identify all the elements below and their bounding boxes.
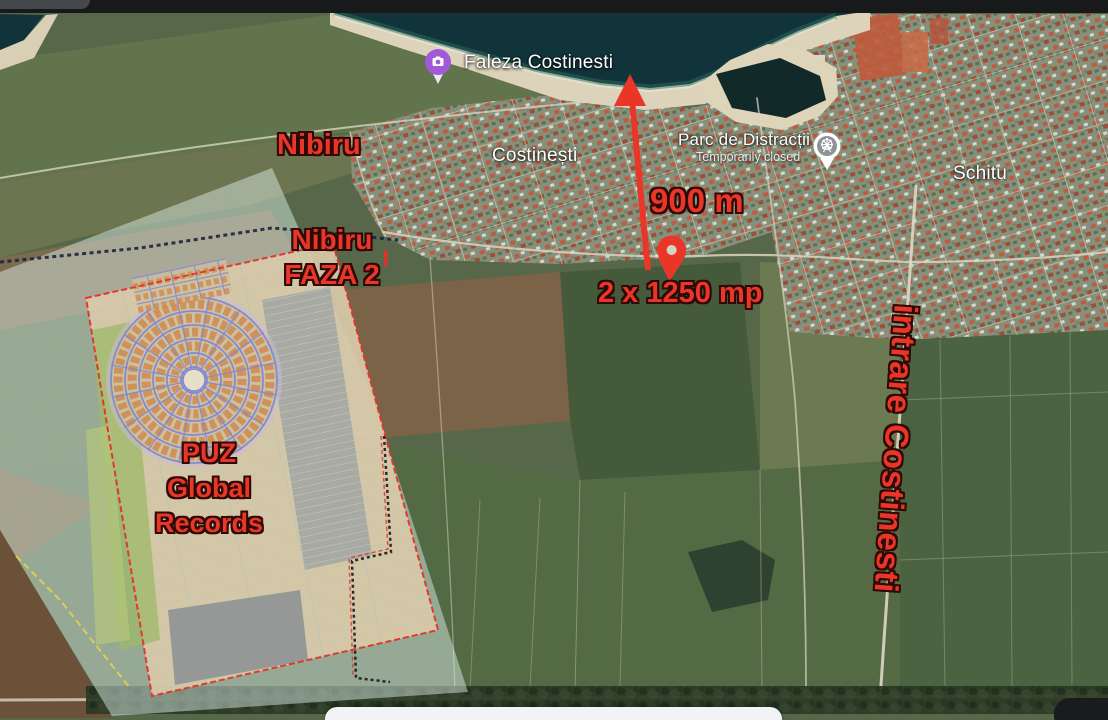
annotation-nibiru-faza2: Nibiru FAZA 2: [251, 222, 413, 292]
label-parc-status: Temporarily closed: [696, 150, 800, 164]
label-costinesti: Costinești: [492, 145, 577, 167]
top-edge-bar: [0, 0, 1108, 13]
annotation-900m: 900 m: [650, 180, 744, 221]
annotation-nibiru-faza2-line2: FAZA 2: [251, 257, 413, 292]
label-parc-de-distractii[interactable]: Parc de Distracții: [678, 130, 810, 150]
annotation-puz-line2: Global: [134, 471, 284, 506]
label-faleza-costinesti[interactable]: Faleza Costinesti: [464, 52, 613, 74]
top-edge-tab: [0, 0, 90, 9]
annotation-puz-line3: Records: [134, 506, 284, 541]
annotation-2x1250mp: 2 x 1250 mp: [598, 275, 762, 311]
annotation-nibiru-faza2-line1: Nibiru: [251, 222, 413, 257]
bottom-right-corner-shape: [1054, 698, 1108, 720]
map-stage: Faleza Costinesti Costinești Parc de Dis…: [0, 0, 1108, 720]
annotation-puz-global-records: PUZ Global Records: [134, 436, 284, 541]
annotation-puz-line1: PUZ: [134, 436, 284, 471]
satellite-map[interactable]: [0, 0, 1108, 720]
annotation-nibiru: Nibiru: [277, 127, 361, 163]
label-schitu: Schitu: [953, 163, 1007, 185]
bottom-panel-edge[interactable]: [325, 707, 782, 720]
